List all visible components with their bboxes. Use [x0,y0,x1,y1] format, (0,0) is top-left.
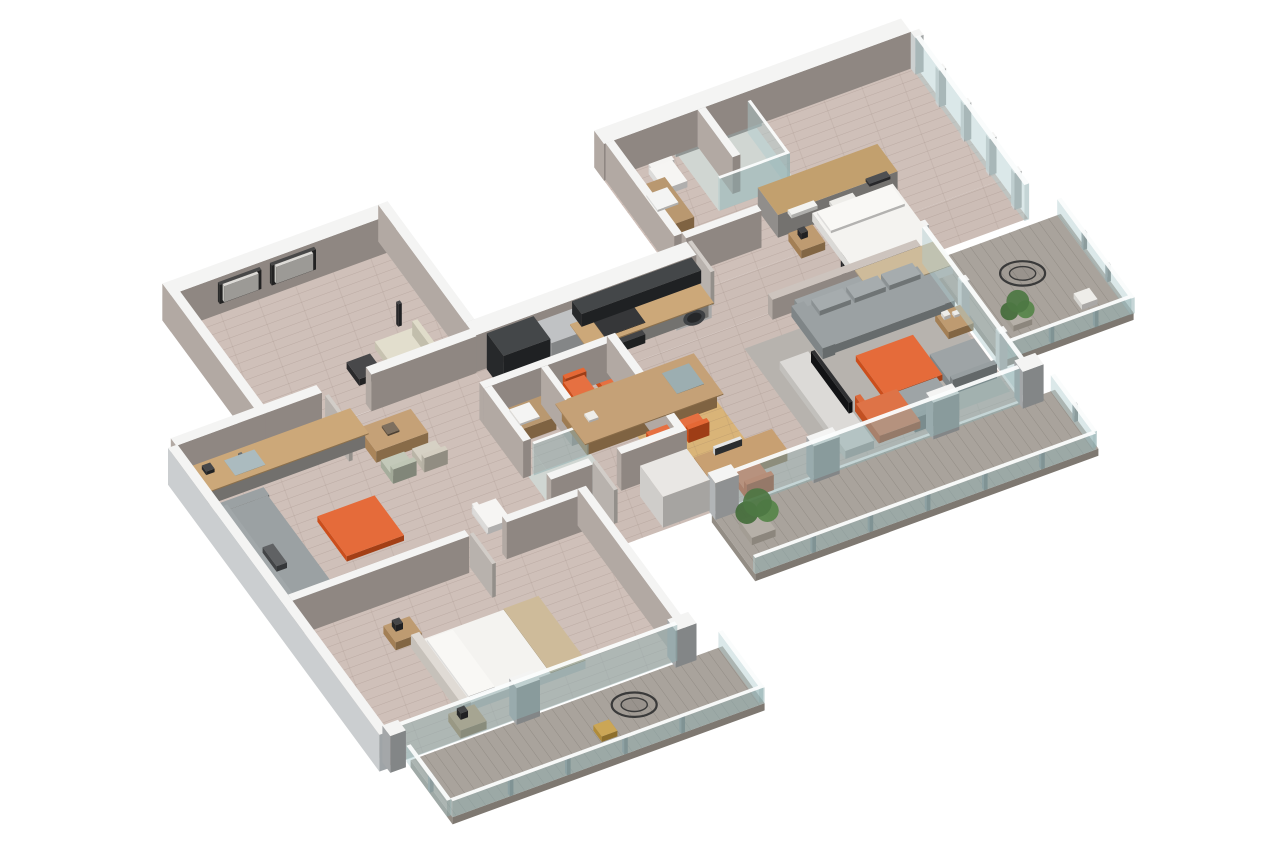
wire-chair-bedroom2 [612,693,657,717]
floorplan-render: 3D isometric cutaway floor plan render o… [0,0,1280,853]
wire-chair-master [1000,261,1045,285]
floorplan-svg [0,0,1280,853]
pier-bed2-sw [382,720,406,773]
floorlamp-den [396,300,402,326]
pier-nook [708,464,739,520]
